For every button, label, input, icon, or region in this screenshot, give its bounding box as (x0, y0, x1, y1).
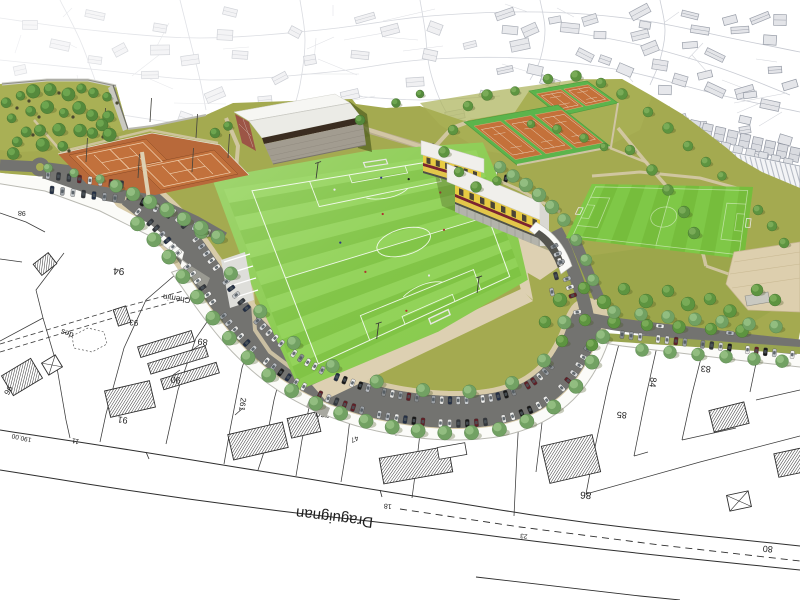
svg-text:83: 83 (700, 364, 711, 375)
svg-text:80: 80 (762, 544, 773, 555)
svg-text:89: 89 (197, 336, 208, 347)
svg-text:93: 93 (129, 318, 139, 327)
svg-text:98: 98 (18, 209, 26, 216)
svg-text:94: 94 (113, 265, 125, 277)
svg-text:18: 18 (384, 502, 392, 510)
svg-text:86: 86 (579, 489, 591, 501)
svg-text:261: 261 (237, 397, 248, 412)
svg-text:91: 91 (117, 414, 128, 425)
svg-text:23: 23 (520, 532, 528, 540)
svg-text:90: 90 (170, 374, 181, 385)
svg-text:84: 84 (647, 377, 658, 388)
svg-text:11: 11 (71, 436, 80, 444)
svg-text:85: 85 (616, 410, 627, 421)
